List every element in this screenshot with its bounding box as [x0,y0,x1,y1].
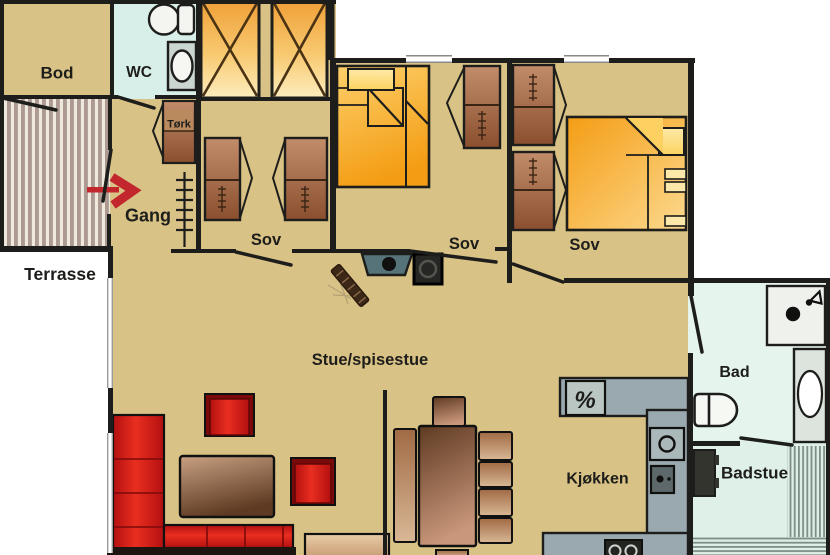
svg-text:Sov: Sov [569,236,600,254]
svg-text:%: % [574,387,595,414]
svg-text:Tørk: Tørk [167,119,192,131]
svg-text:Terrasse: Terrasse [24,264,96,284]
svg-text:Bad: Bad [719,364,749,381]
svg-text:Sov: Sov [251,231,282,249]
svg-text:Bod: Bod [40,64,73,83]
svg-text:Stue/spisestue: Stue/spisestue [312,351,428,369]
svg-text:WC: WC [126,64,152,81]
svg-text:Kjøkken: Kjøkken [566,471,628,488]
svg-text:Gang: Gang [125,206,171,226]
svg-text:Badstue: Badstue [721,464,788,483]
svg-text:Sov: Sov [449,235,480,253]
